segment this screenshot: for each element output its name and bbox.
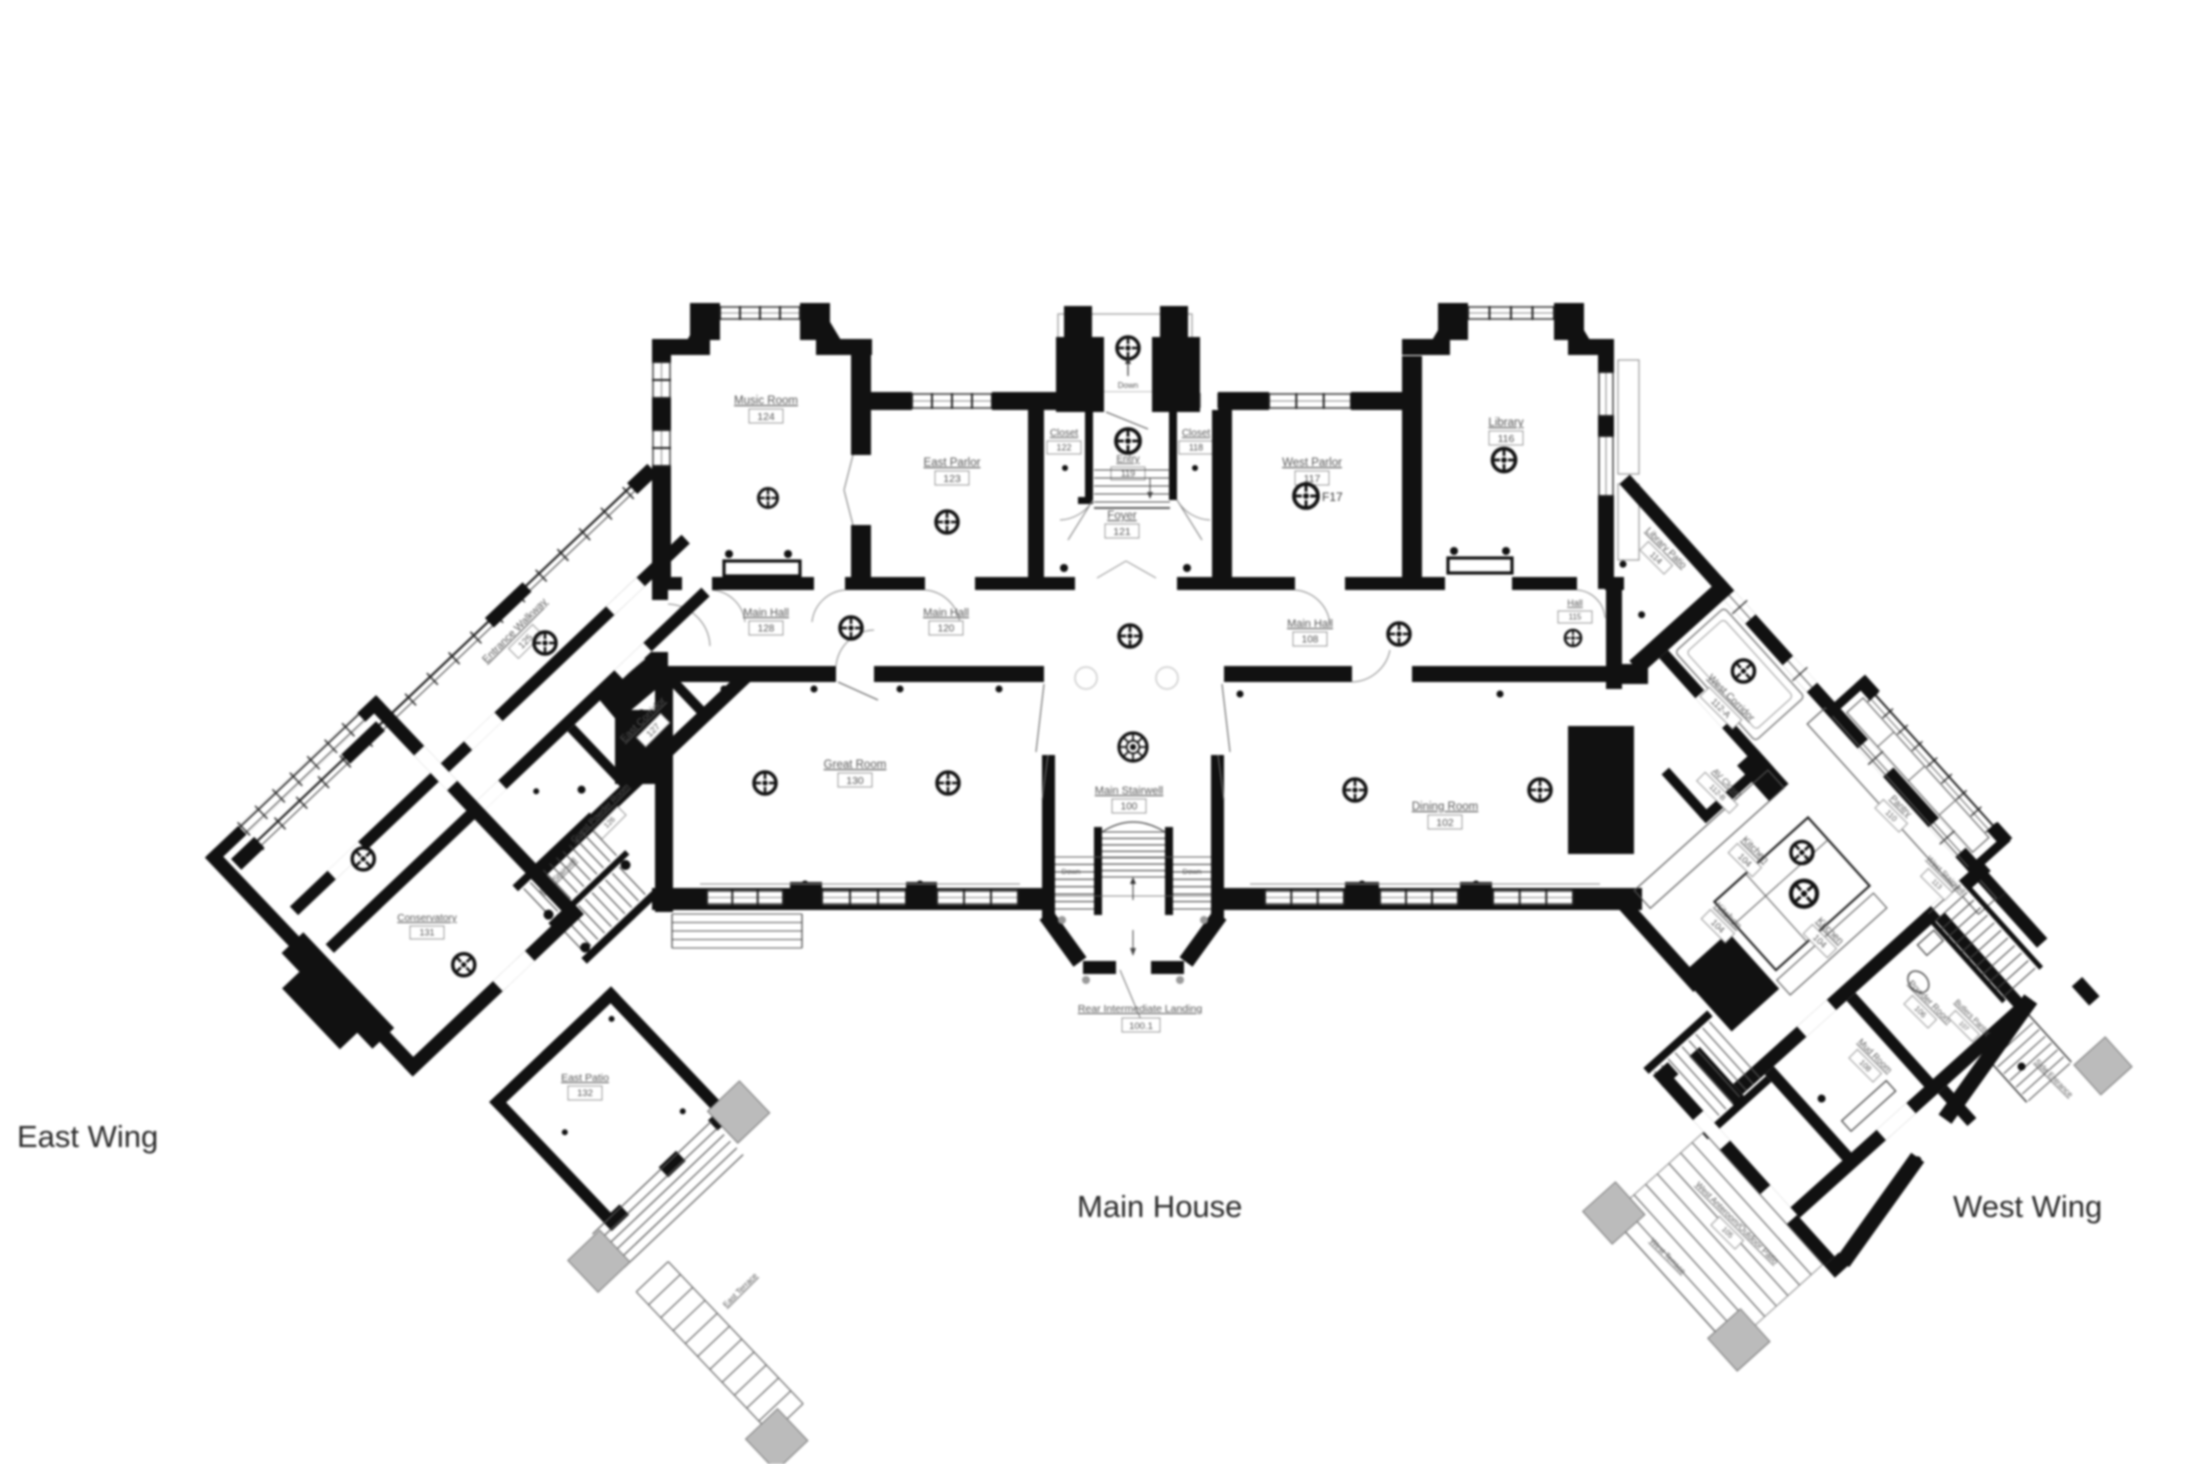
svg-text:Main Hall: Main Hall xyxy=(1287,618,1333,630)
svg-text:100: 100 xyxy=(1121,802,1138,813)
svg-text:West Parlor: West Parlor xyxy=(1282,457,1342,469)
svg-text:118: 118 xyxy=(1189,443,1203,453)
svg-text:East Parlor: East Parlor xyxy=(924,457,981,469)
svg-text:Down: Down xyxy=(1118,381,1138,390)
svg-text:120: 120 xyxy=(938,624,955,635)
svg-text:Foyer: Foyer xyxy=(1107,510,1137,522)
svg-text:123: 123 xyxy=(943,473,961,485)
svg-text:108: 108 xyxy=(1302,635,1319,646)
svg-text:Music Room: Music Room xyxy=(734,395,798,407)
svg-text:130: 130 xyxy=(846,775,864,787)
svg-text:128: 128 xyxy=(758,624,775,635)
svg-text:West Wing: West Wing xyxy=(1953,1189,2102,1224)
svg-text:Main Hall: Main Hall xyxy=(743,607,789,619)
svg-text:132: 132 xyxy=(577,1088,593,1099)
svg-text:East Patio: East Patio xyxy=(561,1072,609,1084)
svg-text:102: 102 xyxy=(1436,817,1454,829)
svg-text:Great Room: Great Room xyxy=(824,759,887,771)
svg-text:121: 121 xyxy=(1113,526,1131,538)
svg-text:100.1: 100.1 xyxy=(1129,1021,1153,1032)
svg-text:Main House: Main House xyxy=(1077,1189,1242,1224)
svg-text:131: 131 xyxy=(419,928,434,938)
svg-text:Hall: Hall xyxy=(1567,598,1583,608)
svg-text:Rear Intermediate Landing: Rear Intermediate Landing xyxy=(1078,1003,1202,1015)
svg-text:Closet: Closet xyxy=(1182,428,1211,439)
svg-text:Entry: Entry xyxy=(1116,454,1139,465)
svg-text:East Wing: East Wing xyxy=(17,1119,158,1154)
svg-text:Conservatory: Conservatory xyxy=(397,913,456,924)
svg-text:Main Stairwell: Main Stairwell xyxy=(1095,785,1163,797)
svg-text:Down: Down xyxy=(1061,867,1080,876)
svg-text:F17: F17 xyxy=(1322,490,1343,504)
svg-text:122: 122 xyxy=(1056,443,1071,453)
svg-text:Library: Library xyxy=(1488,417,1523,429)
svg-text:Closet: Closet xyxy=(1050,428,1079,439)
svg-text:116: 116 xyxy=(1498,433,1515,445)
svg-text:Main Hall: Main Hall xyxy=(923,607,969,619)
svg-text:Down: Down xyxy=(1182,867,1201,876)
svg-text:115: 115 xyxy=(1569,613,1582,622)
svg-text:124: 124 xyxy=(757,411,775,423)
svg-text:Dining Room: Dining Room xyxy=(1412,801,1478,813)
